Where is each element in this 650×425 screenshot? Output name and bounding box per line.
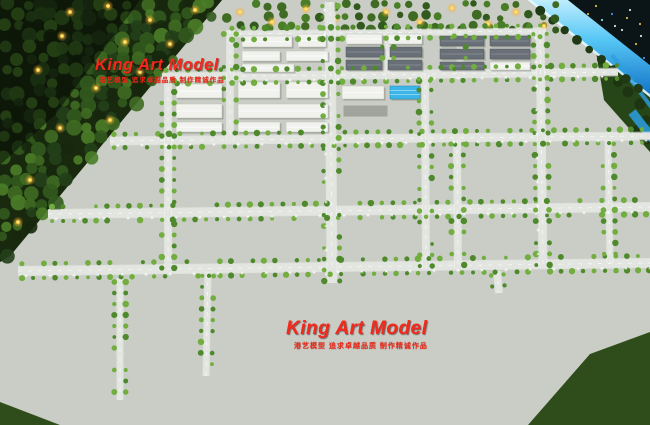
photo-architectural-model: King Art Model 港艺模型 追求卓越品质 制作精诚作品 King A… (0, 0, 650, 425)
model-scene (0, 0, 650, 425)
